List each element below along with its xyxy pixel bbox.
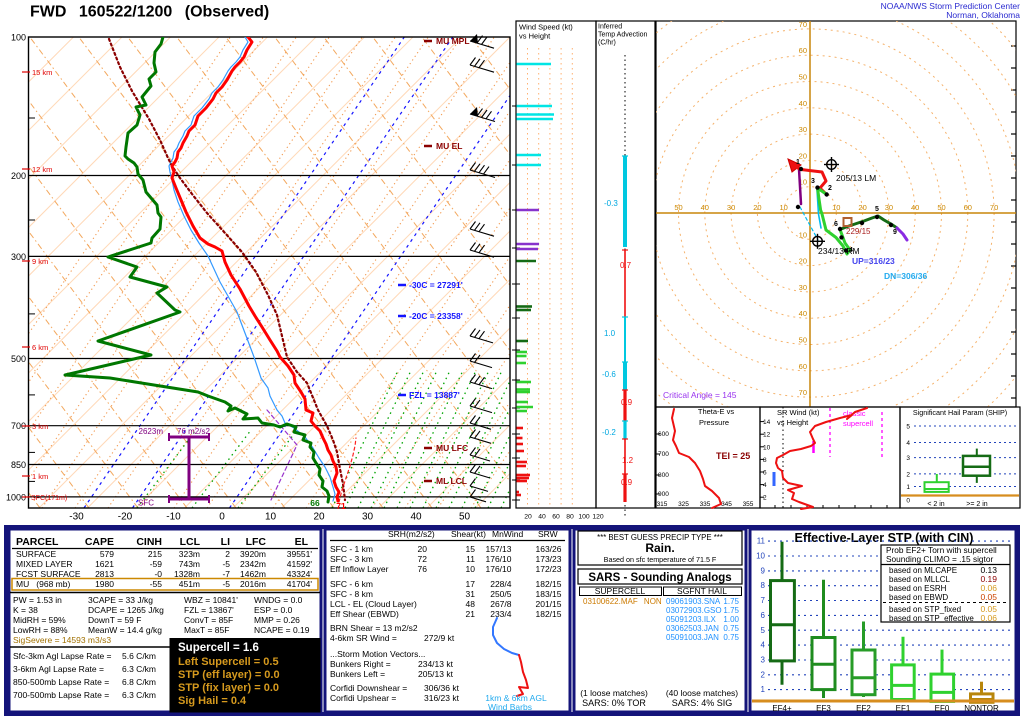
svg-text:Significant Hail Param (SHIP): Significant Hail Param (SHIP) xyxy=(913,408,1007,417)
svg-text:0.05: 0.05 xyxy=(980,592,997,602)
svg-text:5: 5 xyxy=(875,206,879,213)
svg-text:3: 3 xyxy=(761,656,766,665)
svg-text:MMP = 0.26: MMP = 0.26 xyxy=(254,615,300,625)
svg-text:30: 30 xyxy=(362,512,374,523)
svg-text:SFC - 3 km: SFC - 3 km xyxy=(330,554,373,564)
svg-text:3-6km Agl Lapse Rate =: 3-6km Agl Lapse Rate = xyxy=(13,664,104,674)
svg-text:183/15: 183/15 xyxy=(536,589,562,599)
svg-text:Eff Shear (EBWD): Eff Shear (EBWD) xyxy=(330,609,399,619)
svg-text:Critical Angle = 145: Critical Angle = 145 xyxy=(663,390,737,400)
svg-text:306/36 kt: 306/36 kt xyxy=(424,683,460,693)
svg-text:Shear(kt): Shear(kt) xyxy=(451,529,486,539)
svg-text:80: 80 xyxy=(566,514,574,521)
svg-text:1: 1 xyxy=(796,159,800,166)
svg-text:10: 10 xyxy=(780,203,788,212)
svg-text:66: 66 xyxy=(310,498,320,508)
svg-text:70: 70 xyxy=(799,20,807,29)
svg-text:2016m: 2016m xyxy=(240,579,266,589)
svg-text:NCAPE = 0.19: NCAPE = 0.19 xyxy=(254,625,310,635)
svg-text:39551': 39551' xyxy=(287,549,313,559)
svg-text:234/13 RM: 234/13 RM xyxy=(818,246,860,256)
svg-text:12 km: 12 km xyxy=(32,165,52,174)
svg-text:FWD 160522/1200 (Observed): FWD 160522/1200 (Observed) xyxy=(30,4,269,21)
svg-text:71: 71 xyxy=(336,501,346,511)
svg-text:9: 9 xyxy=(761,566,766,575)
svg-text:0.7: 0.7 xyxy=(620,261,632,270)
svg-text:182/15: 182/15 xyxy=(536,609,562,619)
svg-text:2623m: 2623m xyxy=(139,427,164,436)
svg-text:-0.2: -0.2 xyxy=(602,428,616,437)
svg-text:1621: 1621 xyxy=(95,559,114,569)
svg-text:173/23: 173/23 xyxy=(536,554,562,564)
svg-text:20: 20 xyxy=(418,544,428,554)
svg-text:-55: -55 xyxy=(150,579,163,589)
svg-text:-5: -5 xyxy=(222,579,230,589)
svg-text:20: 20 xyxy=(753,203,761,212)
svg-text:2: 2 xyxy=(906,471,910,478)
svg-text:Corfidi Downshear =: Corfidi Downshear = xyxy=(330,683,407,693)
svg-text:2: 2 xyxy=(761,670,766,679)
svg-text:30: 30 xyxy=(799,283,807,292)
svg-text:based on STP_effective: based on STP_effective xyxy=(889,614,974,623)
svg-text:850: 850 xyxy=(11,460,26,470)
svg-text:Wind Speed (kt): Wind Speed (kt) xyxy=(519,23,573,32)
svg-text:Temp Advection: Temp Advection xyxy=(598,32,648,39)
svg-text:Corfidi Upshear =: Corfidi Upshear = xyxy=(330,693,396,703)
svg-text:2342m: 2342m xyxy=(240,559,266,569)
svg-text:1 km: 1 km xyxy=(32,472,48,481)
svg-text:PW = 1.53 in: PW = 1.53 in xyxy=(13,595,62,605)
svg-text:228/4: 228/4 xyxy=(490,579,512,589)
svg-text:1.75: 1.75 xyxy=(723,606,739,615)
svg-text:70: 70 xyxy=(990,203,998,212)
svg-text:325: 325 xyxy=(678,501,689,508)
svg-text:-5: -5 xyxy=(222,559,230,569)
svg-text:250/5: 250/5 xyxy=(490,589,512,599)
svg-text:2: 2 xyxy=(225,549,230,559)
svg-text:451m: 451m xyxy=(179,579,200,589)
svg-text:1328m: 1328m xyxy=(174,569,200,579)
svg-text:based on ESRH: based on ESRH xyxy=(889,584,947,593)
svg-text:743m: 743m xyxy=(179,559,200,569)
svg-text:03072903.GSO: 03072903.GSO xyxy=(666,606,722,615)
svg-text:60: 60 xyxy=(964,203,972,212)
svg-text:40: 40 xyxy=(799,309,807,318)
svg-text:LFC: LFC xyxy=(246,536,267,548)
svg-text:4: 4 xyxy=(763,482,767,489)
svg-text:EF0: EF0 xyxy=(935,704,950,713)
svg-text:5: 5 xyxy=(761,626,766,635)
svg-text:72: 72 xyxy=(418,554,428,564)
svg-text:Supercell = 1.6: Supercell = 1.6 xyxy=(178,642,259,654)
svg-text:(40 loose matches): (40 loose matches) xyxy=(666,688,738,698)
svg-text:UP=316/23: UP=316/23 xyxy=(852,256,895,266)
svg-text:1.75: 1.75 xyxy=(723,597,739,606)
svg-text:SFC(171m): SFC(171m) xyxy=(31,495,67,502)
svg-text:1462m: 1462m xyxy=(240,569,266,579)
svg-text:30: 30 xyxy=(799,125,807,134)
svg-text:315: 315 xyxy=(657,501,668,508)
svg-text:1.2: 1.2 xyxy=(622,456,634,465)
svg-text:MU MPL: MU MPL xyxy=(436,36,470,46)
svg-text:345: 345 xyxy=(721,501,732,508)
svg-text:172/23: 172/23 xyxy=(536,564,562,574)
svg-text:SURFACE: SURFACE xyxy=(16,549,56,559)
svg-text:6: 6 xyxy=(763,470,767,477)
svg-text:40: 40 xyxy=(701,203,709,212)
svg-text:TEI = 25: TEI = 25 xyxy=(716,451,750,461)
svg-text:based on MLCAPE: based on MLCAPE xyxy=(889,566,957,575)
svg-text:50: 50 xyxy=(674,203,682,212)
svg-text:1: 1 xyxy=(761,685,766,694)
svg-text:10: 10 xyxy=(832,203,840,212)
svg-text:Sig Hail = 0.4: Sig Hail = 0.4 xyxy=(178,695,247,707)
svg-text:201/15: 201/15 xyxy=(536,599,562,609)
svg-text:100: 100 xyxy=(11,33,26,43)
svg-text:6.3 C/km: 6.3 C/km xyxy=(122,690,156,700)
svg-text:05091003.JAN: 05091003.JAN xyxy=(666,633,719,642)
svg-text:5: 5 xyxy=(906,424,910,431)
svg-text:40: 40 xyxy=(410,512,422,523)
svg-text:Rain.: Rain. xyxy=(645,541,674,555)
svg-text:MaxT = 85F: MaxT = 85F xyxy=(184,625,229,635)
svg-text:17: 17 xyxy=(466,579,476,589)
svg-text:EF1: EF1 xyxy=(896,704,911,713)
svg-text:LowRH = 88%: LowRH = 88% xyxy=(13,625,68,635)
svg-text:vs Height: vs Height xyxy=(777,418,809,427)
svg-text:21: 21 xyxy=(466,609,476,619)
svg-text:>= 2 in: >= 2 in xyxy=(966,501,988,508)
svg-text:20: 20 xyxy=(524,514,532,521)
svg-text:6: 6 xyxy=(834,221,838,228)
svg-text:EL: EL xyxy=(295,536,309,548)
svg-text:DN=306/36: DN=306/36 xyxy=(884,271,928,281)
svg-text:10: 10 xyxy=(265,512,277,523)
svg-text:-0.6: -0.6 xyxy=(602,370,616,379)
svg-text:WNDG = 0.0: WNDG = 0.0 xyxy=(254,595,303,605)
svg-text:6.3 C/km: 6.3 C/km xyxy=(122,664,156,674)
svg-text:05091203.ILX: 05091203.ILX xyxy=(666,615,716,624)
svg-text:4: 4 xyxy=(906,440,910,447)
svg-text:8: 8 xyxy=(763,457,767,464)
svg-text:3920m: 3920m xyxy=(240,549,266,559)
svg-text:6 km: 6 km xyxy=(32,343,48,352)
svg-text:700-500mb Lapse Rate =: 700-500mb Lapse Rate = xyxy=(13,690,109,700)
svg-text:1980: 1980 xyxy=(95,579,114,589)
svg-text:8: 8 xyxy=(761,581,766,590)
svg-text:10: 10 xyxy=(466,564,476,574)
svg-text:Sfc-3km Agl Lapse Rate =: Sfc-3km Agl Lapse Rate = xyxy=(13,651,112,661)
svg-text:2813: 2813 xyxy=(95,569,114,579)
svg-text:-20C = 23358': -20C = 23358' xyxy=(409,311,463,321)
svg-text:60: 60 xyxy=(552,514,560,521)
svg-text:0.75: 0.75 xyxy=(723,624,739,633)
svg-text:Left Supercell = 0.5: Left Supercell = 0.5 xyxy=(178,656,279,668)
svg-text:based on STP_fixed: based on STP_fixed xyxy=(889,605,961,614)
svg-text:DownT = 59 F: DownT = 59 F xyxy=(88,615,141,625)
svg-text:120: 120 xyxy=(592,514,604,521)
svg-text:10: 10 xyxy=(756,552,765,561)
svg-text:Based on sfc temperature of 71: Based on sfc temperature of 71.5 F xyxy=(604,555,717,564)
svg-text:SARS: 0% TOR: SARS: 0% TOR xyxy=(582,698,646,708)
svg-text:based on EBWD: based on EBWD xyxy=(889,593,948,602)
svg-text:267/8: 267/8 xyxy=(490,599,512,609)
svg-text:31: 31 xyxy=(466,589,476,599)
svg-text:50: 50 xyxy=(799,73,807,82)
svg-text:03100622.MAF NON: 03100622.MAF NON xyxy=(583,597,662,606)
svg-text:09061903.SNA: 09061903.SNA xyxy=(666,597,721,606)
svg-text:10: 10 xyxy=(799,230,807,239)
svg-text:DCAPE = 1265 J/kg: DCAPE = 1265 J/kg xyxy=(88,605,164,615)
svg-text:0: 0 xyxy=(906,498,910,505)
svg-text:ESP = 0.0: ESP = 0.0 xyxy=(254,605,293,615)
svg-text:6: 6 xyxy=(761,611,766,620)
svg-text:< 2 in: < 2 in xyxy=(927,501,944,508)
svg-text:MU LFC: MU LFC xyxy=(436,443,468,453)
svg-text:SRW: SRW xyxy=(538,529,558,539)
svg-text:Inferred: Inferred xyxy=(598,24,622,31)
svg-text:MU EL: MU EL xyxy=(436,141,462,151)
svg-text:CINH: CINH xyxy=(136,536,162,548)
svg-text:20: 20 xyxy=(858,203,866,212)
svg-text:20: 20 xyxy=(313,512,325,523)
svg-text:234/13 kt: 234/13 kt xyxy=(418,659,454,669)
svg-text:50: 50 xyxy=(799,336,807,345)
svg-text:500: 500 xyxy=(11,354,26,364)
svg-text:Bunkers Right =: Bunkers Right = xyxy=(330,659,391,669)
svg-text:...Storm Motion Vectors...: ...Storm Motion Vectors... xyxy=(330,649,425,659)
svg-text:233/4: 233/4 xyxy=(490,609,512,619)
svg-text:-10: -10 xyxy=(166,512,181,523)
svg-text:SRH(m2/s2): SRH(m2/s2) xyxy=(388,529,435,539)
svg-text:60: 60 xyxy=(799,362,807,371)
svg-text:48: 48 xyxy=(466,599,476,609)
svg-text:Sounding CLIMO = .15 sigtor: Sounding CLIMO = .15 sigtor xyxy=(886,554,993,564)
svg-text:EF4+: EF4+ xyxy=(772,704,792,713)
svg-text:1.00: 1.00 xyxy=(723,615,739,624)
svg-text:PARCEL: PARCEL xyxy=(16,536,59,548)
svg-text:15 km: 15 km xyxy=(32,68,52,77)
svg-text:40: 40 xyxy=(799,99,807,108)
svg-text:11: 11 xyxy=(466,554,475,564)
svg-text:0.9: 0.9 xyxy=(621,478,633,487)
svg-text:0.06: 0.06 xyxy=(980,613,997,623)
svg-text:MidRH = 59%: MidRH = 59% xyxy=(13,615,66,625)
svg-text:SFC - 1 km: SFC - 1 km xyxy=(330,544,373,554)
svg-text:6.8 C/km: 6.8 C/km xyxy=(122,677,156,687)
svg-text:5.6 C/km: 5.6 C/km xyxy=(122,651,156,661)
svg-text:SFC: SFC xyxy=(138,499,154,508)
svg-text:Theta-E vs: Theta-E vs xyxy=(698,407,735,416)
svg-text:272/9 kt: 272/9 kt xyxy=(424,633,455,643)
svg-text:LCL - EL (Cloud Layer): LCL - EL (Cloud Layer) xyxy=(330,599,417,609)
svg-text:CAPE: CAPE xyxy=(85,536,114,548)
svg-text:EF2: EF2 xyxy=(856,704,871,713)
svg-text:LI: LI xyxy=(221,536,230,548)
svg-text:40: 40 xyxy=(538,514,546,521)
svg-text:MU (968 mb): MU (968 mb) xyxy=(16,579,70,589)
svg-text:MIXED LAYER: MIXED LAYER xyxy=(16,559,73,569)
svg-text:43324': 43324' xyxy=(287,569,313,579)
svg-text:Norman, Oklahoma: Norman, Oklahoma xyxy=(946,10,1020,20)
svg-text:76 m2/s2: 76 m2/s2 xyxy=(177,427,210,436)
svg-text:MeanW = 14.4 g/kg: MeanW = 14.4 g/kg xyxy=(88,625,162,635)
svg-text:182/15: 182/15 xyxy=(536,579,562,589)
svg-text:LCL: LCL xyxy=(180,536,201,548)
svg-text:41704': 41704' xyxy=(287,579,313,589)
svg-text:205/13 LM: 205/13 LM xyxy=(836,173,876,183)
svg-text:-30C = 27291': -30C = 27291' xyxy=(409,280,463,290)
svg-text:-7: -7 xyxy=(222,569,230,579)
svg-text:4-6km SR Wind =: 4-6km SR Wind = xyxy=(330,633,397,643)
svg-text:205/13 kt: 205/13 kt xyxy=(418,669,454,679)
svg-text:NONTOR: NONTOR xyxy=(964,704,999,713)
svg-text:30: 30 xyxy=(727,203,735,212)
svg-text:9 km: 9 km xyxy=(32,257,48,266)
svg-text:EF3: EF3 xyxy=(816,704,831,713)
svg-text:10: 10 xyxy=(763,444,771,451)
svg-text:323m: 323m xyxy=(179,549,200,559)
svg-text:FZL = 13887': FZL = 13887' xyxy=(409,390,460,400)
svg-text:41592': 41592' xyxy=(287,559,313,569)
svg-text:1.0: 1.0 xyxy=(604,329,616,338)
svg-text:579: 579 xyxy=(100,549,114,559)
svg-text:850-500mb Lapse Rate =: 850-500mb Lapse Rate = xyxy=(13,677,109,687)
svg-text:MnWind: MnWind xyxy=(492,529,523,539)
svg-text:STP (fix layer) = 0.0: STP (fix layer) = 0.0 xyxy=(178,682,279,694)
svg-text:FCST SURFACE: FCST SURFACE xyxy=(16,569,81,579)
svg-text:9: 9 xyxy=(893,229,897,236)
svg-text:based on MLLCL: based on MLLCL xyxy=(889,575,950,584)
svg-text:SFC - 8 km: SFC - 8 km xyxy=(330,589,373,599)
svg-text:7: 7 xyxy=(761,596,766,605)
svg-text:229/15: 229/15 xyxy=(846,227,871,236)
svg-text:3: 3 xyxy=(811,178,815,185)
svg-text:11: 11 xyxy=(757,537,766,546)
svg-text:Pressure: Pressure xyxy=(699,418,729,427)
svg-text:14: 14 xyxy=(763,419,771,426)
svg-text:15: 15 xyxy=(466,544,476,554)
svg-text:2: 2 xyxy=(763,495,767,502)
svg-text:STP (eff layer) = 0.0: STP (eff layer) = 0.0 xyxy=(178,669,280,681)
svg-text:0.9: 0.9 xyxy=(621,398,633,407)
svg-text:vs Height: vs Height xyxy=(519,32,551,41)
svg-text:Bunkers Left =: Bunkers Left = xyxy=(330,669,385,679)
svg-text:316/23 kt: 316/23 kt xyxy=(424,693,460,703)
svg-text:50: 50 xyxy=(459,512,471,523)
svg-text:3: 3 xyxy=(906,455,910,462)
svg-text:SigSevere = 14593 m3/s3: SigSevere = 14593 m3/s3 xyxy=(13,635,111,645)
svg-text:176/10: 176/10 xyxy=(486,554,512,564)
svg-text:4: 4 xyxy=(761,641,766,650)
svg-text:60: 60 xyxy=(799,46,807,55)
svg-text:(1 loose matches): (1 loose matches) xyxy=(580,688,648,698)
svg-text:76: 76 xyxy=(418,564,428,574)
svg-text:BRN Shear = 13 m2/s2: BRN Shear = 13 m2/s2 xyxy=(330,623,418,633)
svg-text:176/10: 176/10 xyxy=(486,564,512,574)
svg-text:supercell: supercell xyxy=(843,419,873,428)
svg-text:SFC - 6 km: SFC - 6 km xyxy=(330,579,373,589)
svg-text:WBZ = 10841': WBZ = 10841' xyxy=(184,595,238,605)
svg-text:K = 38: K = 38 xyxy=(13,605,38,615)
svg-text:Eff Inflow Layer: Eff Inflow Layer xyxy=(330,564,389,574)
svg-text:ML LCL: ML LCL xyxy=(436,476,467,486)
svg-text:70: 70 xyxy=(799,388,807,397)
svg-text:-0.3: -0.3 xyxy=(604,199,618,208)
svg-text:0.75: 0.75 xyxy=(723,633,739,642)
svg-text:3 km: 3 km xyxy=(32,422,48,431)
svg-text:163/26: 163/26 xyxy=(536,544,562,554)
svg-text:1: 1 xyxy=(906,484,910,491)
svg-text:12: 12 xyxy=(763,432,771,439)
svg-text:SARS - Sounding Analogs: SARS - Sounding Analogs xyxy=(588,572,731,584)
svg-text:50: 50 xyxy=(937,203,945,212)
svg-text:Effective-Layer STP (with CIN): Effective-Layer STP (with CIN) xyxy=(795,531,974,545)
svg-text:40: 40 xyxy=(911,203,919,212)
svg-text:-30: -30 xyxy=(69,512,84,523)
svg-text:-59: -59 xyxy=(150,559,163,569)
svg-text:30: 30 xyxy=(885,203,893,212)
svg-text:100: 100 xyxy=(578,514,590,521)
svg-text:20: 20 xyxy=(799,257,807,266)
svg-text:-0: -0 xyxy=(154,569,162,579)
svg-text:200: 200 xyxy=(11,171,26,181)
svg-text:SARS: 4% SIG: SARS: 4% SIG xyxy=(672,698,733,708)
svg-text:215: 215 xyxy=(148,549,162,559)
svg-text:335: 335 xyxy=(700,501,711,508)
svg-text:FZL = 13867': FZL = 13867' xyxy=(184,605,234,615)
svg-text:2: 2 xyxy=(828,185,832,192)
svg-text:ConvT = 85F: ConvT = 85F xyxy=(184,615,233,625)
svg-text:SUPERCELL: SUPERCELL xyxy=(595,586,646,596)
svg-text:SGFNT HAIL: SGFNT HAIL xyxy=(677,586,727,596)
svg-text:355: 355 xyxy=(743,501,754,508)
svg-text:0: 0 xyxy=(219,512,225,523)
svg-text:3CAPE = 33 J/kg: 3CAPE = 33 J/kg xyxy=(88,595,153,605)
svg-text:157/13: 157/13 xyxy=(486,544,512,554)
svg-text:Wind Barbs: Wind Barbs xyxy=(488,702,532,712)
svg-text:-20: -20 xyxy=(118,512,133,523)
svg-text:(C/hr): (C/hr) xyxy=(598,40,616,47)
svg-text:03062503.JAN: 03062503.JAN xyxy=(666,624,719,633)
